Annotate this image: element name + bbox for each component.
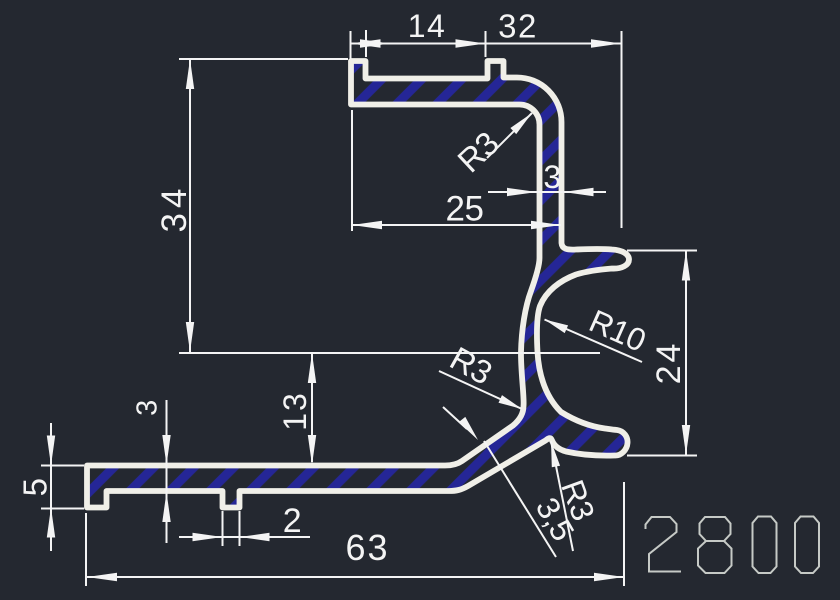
- svg-text:24: 24: [650, 341, 688, 385]
- svg-text:32: 32: [498, 7, 538, 44]
- svg-text:5: 5: [16, 479, 53, 497]
- svg-text:25: 25: [446, 190, 484, 229]
- svg-text:13: 13: [277, 391, 313, 431]
- svg-text:3: 3: [132, 400, 164, 416]
- svg-text:2: 2: [283, 502, 301, 540]
- svg-text:3: 3: [543, 159, 560, 195]
- svg-text:34: 34: [155, 184, 194, 233]
- svg-text:14: 14: [408, 8, 447, 44]
- svg-text:63: 63: [345, 527, 389, 568]
